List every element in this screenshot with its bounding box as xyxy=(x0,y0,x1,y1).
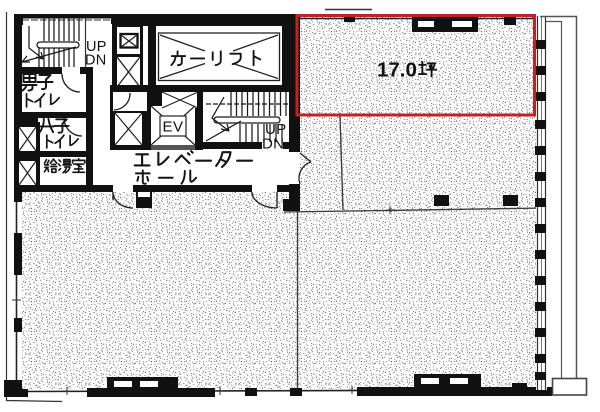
svg-text:17.0: 17.0 xyxy=(377,59,417,82)
svg-text:DN: DN xyxy=(262,136,284,153)
svg-text:DN: DN xyxy=(85,53,107,69)
svg-text:EV: EV xyxy=(162,119,183,136)
